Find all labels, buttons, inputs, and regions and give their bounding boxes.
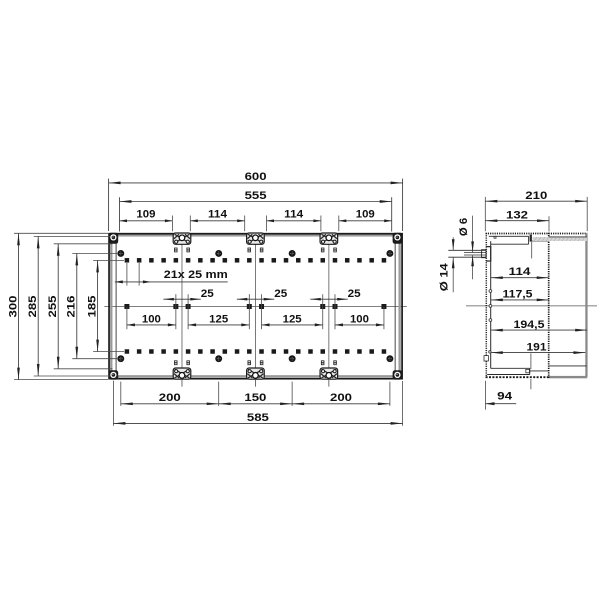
- svg-text:216: 216: [66, 296, 78, 318]
- svg-text:114: 114: [284, 208, 304, 220]
- svg-text:285: 285: [27, 296, 39, 318]
- svg-text:117,5: 117,5: [503, 288, 533, 300]
- svg-text:125: 125: [209, 313, 228, 325]
- svg-text:114: 114: [509, 266, 532, 278]
- svg-text:109: 109: [136, 208, 155, 220]
- svg-text:100: 100: [142, 313, 161, 325]
- svg-text:555: 555: [245, 190, 267, 202]
- svg-text:132: 132: [506, 209, 528, 221]
- svg-text:200: 200: [330, 392, 352, 404]
- svg-text:21x 25 mm: 21x 25 mm: [164, 269, 228, 281]
- svg-text:194,5: 194,5: [514, 319, 545, 331]
- svg-text:210: 210: [525, 190, 547, 202]
- svg-text:585: 585: [247, 412, 269, 424]
- svg-text:109: 109: [356, 208, 375, 220]
- svg-text:Ø 6: Ø 6: [458, 218, 470, 236]
- svg-text:114: 114: [208, 208, 228, 220]
- svg-text:25: 25: [348, 288, 361, 300]
- svg-text:200: 200: [159, 392, 181, 404]
- svg-text:191: 191: [527, 341, 547, 353]
- svg-text:255: 255: [47, 296, 59, 318]
- svg-text:Ø 14: Ø 14: [439, 262, 451, 291]
- svg-text:300: 300: [7, 296, 19, 318]
- svg-text:100: 100: [350, 313, 369, 325]
- svg-text:25: 25: [201, 288, 214, 300]
- svg-text:150: 150: [244, 392, 266, 404]
- svg-text:600: 600: [245, 171, 267, 183]
- svg-text:185: 185: [87, 296, 99, 318]
- svg-text:125: 125: [283, 313, 302, 325]
- svg-text:25: 25: [274, 288, 287, 300]
- svg-text:94: 94: [497, 391, 513, 403]
